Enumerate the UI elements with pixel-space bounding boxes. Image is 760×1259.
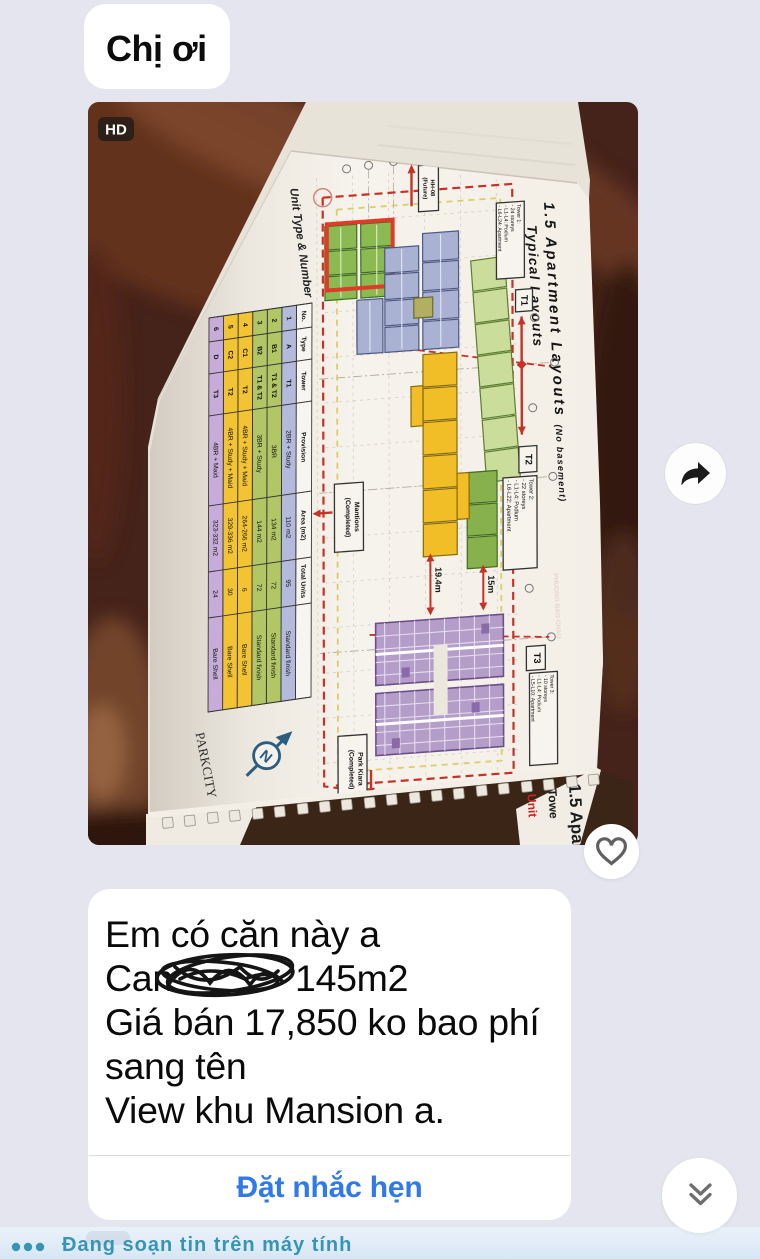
svg-text:Type: Type xyxy=(300,336,307,352)
svg-text:- L6-L22: Apartment: - L6-L22: Apartment xyxy=(505,480,511,532)
svg-text:C2: C2 xyxy=(226,350,233,360)
svg-text:329-336 m2: 329-336 m2 xyxy=(226,517,233,554)
svg-text:323-332 m2: 323-332 m2 xyxy=(211,519,218,556)
svg-text:T1 & T2: T1 & T2 xyxy=(255,375,262,401)
svg-text:Bare Shell: Bare Shell xyxy=(240,644,247,677)
svg-text:Area (m2): Area (m2) xyxy=(299,510,306,541)
svg-text:Unit: Unit xyxy=(524,794,539,818)
svg-text:Tower 3:: Tower 3: xyxy=(548,674,554,694)
svg-text:15m: 15m xyxy=(486,575,496,593)
svg-text:- 22 storeys: - 22 storeys xyxy=(520,479,526,509)
svg-text:(Completed): (Completed) xyxy=(344,498,351,538)
svg-text:Total Units: Total Units xyxy=(299,564,306,599)
svg-text:T1 & T2: T1 & T2 xyxy=(270,373,277,399)
svg-text:(Completed): (Completed) xyxy=(347,750,354,790)
svg-text:Bare Shell: Bare Shell xyxy=(226,646,233,679)
svg-text:24: 24 xyxy=(211,590,218,599)
svg-text:- L6-L24: Apartment: - L6-L24: Apartment xyxy=(496,206,502,252)
svg-text:- L1-L4: Podium: - L1-L4: Podium xyxy=(503,205,509,242)
svg-text:Provision: Provision xyxy=(300,432,307,463)
svg-text:Standard finish: Standard finish xyxy=(255,635,262,681)
svg-text:3BR: 3BR xyxy=(270,444,277,458)
svg-text:- L1-L4: Podium: - L1-L4: Podium xyxy=(536,675,542,712)
svg-text:Standard finish: Standard finish xyxy=(269,632,276,678)
svg-text:- L5-L10: Apartment: - L5-L10: Apartment xyxy=(529,676,535,722)
svg-text:T1: T1 xyxy=(518,295,529,307)
svg-text:4BR + Study + Maid: 4BR + Study + Maid xyxy=(226,427,233,489)
svg-text:No.: No. xyxy=(300,310,307,322)
svg-text:72: 72 xyxy=(270,581,277,590)
svg-text:4BR + Study + Maid: 4BR + Study + Maid xyxy=(241,425,248,487)
svg-text:- L1-L4: Podium: - L1-L4: Podium xyxy=(513,480,519,521)
svg-text:T2: T2 xyxy=(226,387,233,396)
svg-text:95: 95 xyxy=(284,579,291,588)
svg-text:B2: B2 xyxy=(256,346,263,356)
svg-text:B1: B1 xyxy=(270,344,277,354)
svg-text:Park Kiara: Park Kiara xyxy=(356,752,363,786)
svg-text:Standard finish: Standard finish xyxy=(284,630,291,676)
svg-text:Mantions: Mantions xyxy=(353,502,360,532)
svg-text:T3: T3 xyxy=(212,390,219,399)
svg-text:T2: T2 xyxy=(523,454,534,465)
svg-text:- 10 storeys: - 10 storeys xyxy=(542,675,548,703)
svg-text:144 m2: 144 m2 xyxy=(255,520,262,544)
svg-text:C1: C1 xyxy=(241,348,248,358)
svg-text:Bare Shell: Bare Shell xyxy=(211,648,218,681)
svg-text:Tower: Tower xyxy=(300,371,307,391)
svg-text:HH-08: HH-08 xyxy=(429,180,435,198)
svg-text:4BR + Maid: 4BR + Maid xyxy=(212,442,219,479)
svg-text:Towe: Towe xyxy=(545,789,561,820)
svg-text:(Future): (Future) xyxy=(421,177,427,199)
svg-text:19.4m: 19.4m xyxy=(433,567,443,593)
svg-text:30: 30 xyxy=(226,588,233,597)
svg-text:72: 72 xyxy=(255,583,262,592)
svg-text:3BR + Study: 3BR + Study xyxy=(255,434,262,474)
svg-text:T1: T1 xyxy=(285,379,292,388)
svg-text:T3: T3 xyxy=(531,652,542,663)
svg-text:110 m2: 110 m2 xyxy=(284,516,291,539)
svg-text:HD: HD xyxy=(105,122,127,139)
svg-text:264-266 m2: 264-266 m2 xyxy=(241,515,248,552)
svg-text:Tower 2:: Tower 2: xyxy=(527,479,533,501)
svg-text:- 24 storeys: - 24 storeys xyxy=(509,205,515,233)
svg-text:2BR + Study: 2BR + Study xyxy=(284,430,291,470)
svg-text:T2: T2 xyxy=(241,385,248,394)
svg-text:Tower 1:: Tower 1: xyxy=(515,204,521,224)
svg-text:134 m2: 134 m2 xyxy=(270,518,277,542)
